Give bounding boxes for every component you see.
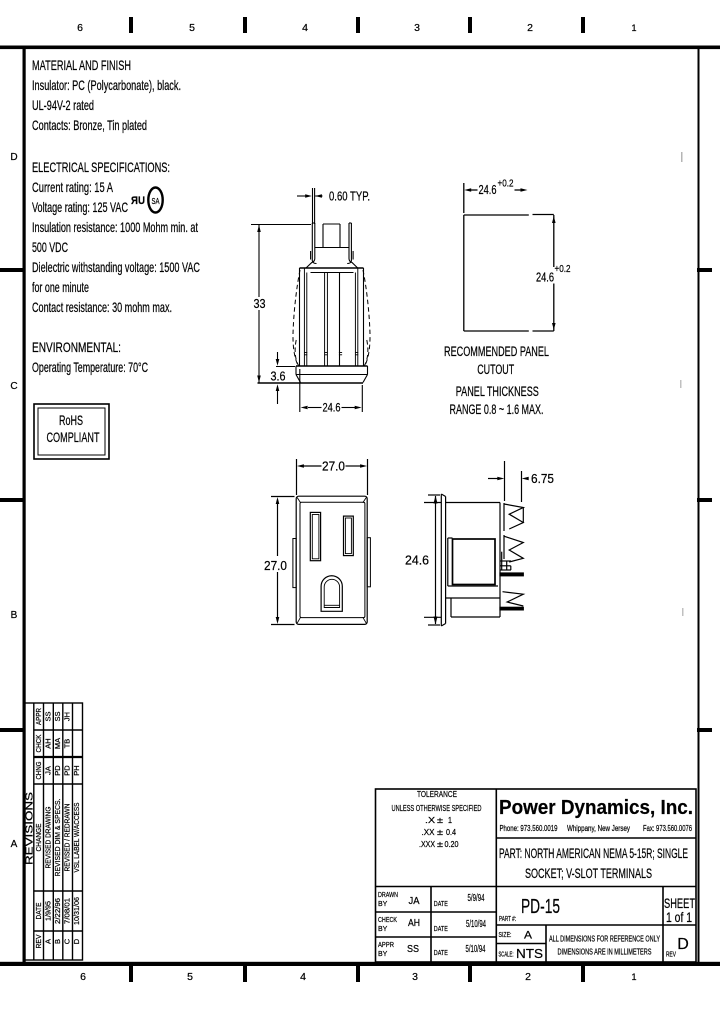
svg-text:6: 6 (77, 22, 83, 34)
svg-text:24.6: 24.6 (479, 183, 497, 197)
svg-text:DATE: DATE (434, 926, 448, 933)
svg-text:5/10/94: 5/10/94 (466, 943, 486, 955)
svg-text:27.0: 27.0 (264, 558, 287, 573)
svg-text:DIMENSIONS ARE IN MILLIMETERS: DIMENSIONS ARE IN MILLIMETERS (558, 948, 652, 957)
svg-text:1: 1 (631, 23, 636, 33)
svg-text:APPR: APPR (378, 942, 394, 949)
svg-text:24.6: 24.6 (536, 271, 554, 285)
svg-text:6: 6 (80, 971, 86, 983)
svg-text:CHANGE: CHANGE (34, 824, 43, 852)
svg-text:COMPLIANT: COMPLIANT (47, 429, 100, 445)
svg-text:Dielectric withstanding voltag: Dielectric withstanding voltage: 1500 VA… (32, 259, 200, 275)
svg-text:AH: AH (408, 917, 420, 929)
svg-text:+0.2: +0.2 (498, 179, 514, 190)
svg-text:1: 1 (448, 815, 452, 825)
svg-text:PANEL THICKNESS: PANEL THICKNESS (456, 384, 539, 399)
svg-text:27.0: 27.0 (322, 459, 345, 474)
svg-text:1/9/95: 1/9/95 (44, 901, 53, 921)
svg-text:JA: JA (409, 895, 420, 907)
svg-text:for one minute: for one minute (32, 279, 89, 295)
svg-text:D: D (677, 936, 689, 953)
svg-text:Current rating: 15 A: Current rating: 15 A (32, 179, 113, 195)
svg-text:A: A (44, 939, 53, 944)
svg-text:SS: SS (407, 943, 419, 955)
svg-text:REVISED / REDRAWN: REVISED / REDRAWN (63, 804, 72, 872)
svg-text:1: 1 (631, 972, 636, 982)
svg-text:4: 4 (302, 22, 308, 34)
svg-text:REVISED DRAWING: REVISED DRAWING (44, 806, 53, 868)
svg-text:6.75: 6.75 (531, 472, 554, 486)
svg-text:Contact resistance: 30 mohm ma: Contact resistance: 30 mohm max. (32, 299, 172, 315)
svg-text:UL-94V-2 rated: UL-94V-2 rated (32, 97, 94, 113)
svg-text:.XX: .XX (422, 827, 435, 837)
svg-text:5: 5 (189, 22, 195, 34)
svg-text:RoHS: RoHS (59, 412, 83, 428)
svg-text:5: 5 (187, 971, 193, 983)
svg-text:±: ± (437, 815, 443, 825)
svg-text:CHNG: CHNG (34, 761, 43, 779)
svg-text:REV: REV (666, 952, 676, 959)
svg-text:PART #:: PART #: (499, 916, 516, 923)
svg-text:JH: JH (63, 712, 72, 721)
svg-text:CUTOUT: CUTOUT (477, 362, 514, 377)
svg-text:RECOMMENDED PANEL: RECOMMENDED PANEL (444, 344, 549, 359)
svg-text:33: 33 (254, 297, 266, 311)
svg-text:DRAWN: DRAWN (378, 892, 398, 899)
svg-text:7/08/01: 7/08/01 (63, 898, 72, 924)
svg-text:TB: TB (63, 739, 72, 749)
svg-text:MATERIAL AND FINISH: MATERIAL AND FINISH (32, 57, 131, 73)
svg-text:10/31/06: 10/31/06 (72, 897, 81, 925)
svg-text:ENVIRONMENTAL:: ENVIRONMENTAL: (32, 339, 121, 355)
svg-text:Phone: 973.560.0019: Phone: 973.560.0019 (500, 823, 558, 833)
svg-text:TOLERANCE: TOLERANCE (417, 789, 457, 799)
svg-text:0.60 TYP.: 0.60 TYP. (329, 190, 370, 204)
svg-text:B: B (11, 610, 18, 621)
svg-text:SIZE:: SIZE: (499, 932, 512, 939)
svg-text:SCALE:: SCALE: (499, 952, 514, 959)
svg-text:0.4: 0.4 (446, 827, 456, 837)
svg-text:PART: NORTH AMERICAN NEMA 5-15: PART: NORTH AMERICAN NEMA 5-15R; SINGLE (499, 845, 688, 861)
svg-text:C: C (10, 381, 17, 392)
svg-text:Fax: 973.560.0076: Fax: 973.560.0076 (643, 823, 692, 833)
svg-text:CHECK: CHECK (378, 917, 397, 924)
svg-text:Insulation resistance: 1000 Mo: Insulation resistance: 1000 Mohm min. at (32, 219, 198, 235)
svg-text:SHEET: SHEET (664, 896, 695, 911)
svg-text:Power Dynamics, Inc.: Power Dynamics, Inc. (499, 796, 693, 819)
svg-text:2/22/96: 2/22/96 (53, 898, 62, 924)
svg-text:PH: PH (72, 765, 81, 775)
svg-text:BY: BY (378, 926, 388, 933)
svg-text:1 of 1: 1 of 1 (666, 910, 692, 925)
svg-text:SS: SS (53, 711, 62, 721)
svg-text:0.20: 0.20 (445, 839, 459, 849)
svg-text:CHCK: CHCK (34, 735, 43, 753)
svg-text:PD: PD (63, 765, 72, 776)
svg-text:Voltage rating: 125 VAC: Voltage rating: 125 VAC (32, 199, 128, 215)
svg-text:4: 4 (300, 971, 306, 983)
svg-text:BY: BY (378, 901, 388, 908)
svg-text:AH: AH (44, 738, 53, 748)
svg-text:500 VDC: 500 VDC (32, 239, 68, 255)
svg-text:ЯU: ЯU (131, 195, 145, 207)
svg-text:±: ± (437, 827, 443, 837)
svg-text:DATE: DATE (434, 901, 448, 908)
svg-text:DATE: DATE (434, 950, 448, 957)
svg-text:5/10/94: 5/10/94 (466, 918, 486, 930)
svg-text:3: 3 (412, 971, 418, 983)
svg-text:A: A (524, 930, 533, 942)
svg-text:REVISED DIM & SPECS.: REVISED DIM & SPECS. (53, 799, 62, 877)
svg-text:MA: MA (53, 738, 62, 749)
svg-text:D: D (10, 152, 17, 163)
svg-text:UNLESS OTHERWISE SPECIFIED: UNLESS OTHERWISE SPECIFIED (392, 803, 482, 813)
svg-text:.XXX: .XXX (419, 839, 435, 849)
svg-text:Contacts: Bronze, Tin plated: Contacts: Bronze, Tin plated (32, 117, 147, 133)
svg-text:JA: JA (44, 766, 53, 775)
svg-text:BY: BY (378, 951, 388, 958)
svg-text:±: ± (437, 839, 443, 849)
svg-text:A: A (11, 839, 18, 850)
svg-text:Insulator: PC (Polycarbonate),: Insulator: PC (Polycarbonate), black. (32, 77, 181, 93)
svg-text:Whippany, New Jersey: Whippany, New Jersey (567, 823, 631, 833)
svg-text:NTS: NTS (516, 947, 543, 961)
svg-text:D: D (72, 938, 81, 944)
svg-text:SA: SA (152, 197, 160, 206)
svg-text:ELECTRICAL SPECIFICATIONS:: ELECTRICAL SPECIFICATIONS: (32, 159, 170, 175)
svg-text:Operating Temperature: 70°C: Operating Temperature: 70°C (32, 359, 148, 375)
svg-text:REV: REV (34, 935, 43, 949)
svg-text:ALL DIMENSIONS FOR REFERENCE O: ALL DIMENSIONS FOR REFERENCE ONLY (549, 935, 660, 944)
svg-text:B: B (53, 939, 62, 944)
svg-text:5/9/94: 5/9/94 (468, 892, 485, 904)
svg-text:DATE: DATE (34, 903, 43, 920)
svg-text:VSL LABEL W/ACCESS: VSL LABEL W/ACCESS (72, 803, 81, 873)
svg-text:RANGE 0.8 ~ 1.6 MAX.: RANGE 0.8 ~ 1.6 MAX. (450, 402, 544, 417)
svg-text:24.6: 24.6 (405, 553, 429, 568)
svg-text:PD-15: PD-15 (521, 896, 560, 918)
svg-text:3: 3 (414, 22, 420, 34)
svg-text:C: C (63, 938, 72, 944)
svg-text:24.6: 24.6 (323, 401, 341, 415)
svg-text:+0.2: +0.2 (555, 264, 571, 275)
svg-text:2: 2 (525, 971, 531, 983)
svg-text:APPR: APPR (34, 708, 43, 725)
svg-text:SS: SS (44, 711, 53, 721)
svg-text:.X: .X (425, 815, 435, 825)
svg-text:2: 2 (527, 22, 533, 34)
svg-text:SOCKET; V-SLOT TERMINALS: SOCKET; V-SLOT TERMINALS (525, 865, 652, 881)
svg-text:PD: PD (53, 765, 62, 776)
svg-text:3.6: 3.6 (271, 369, 286, 384)
